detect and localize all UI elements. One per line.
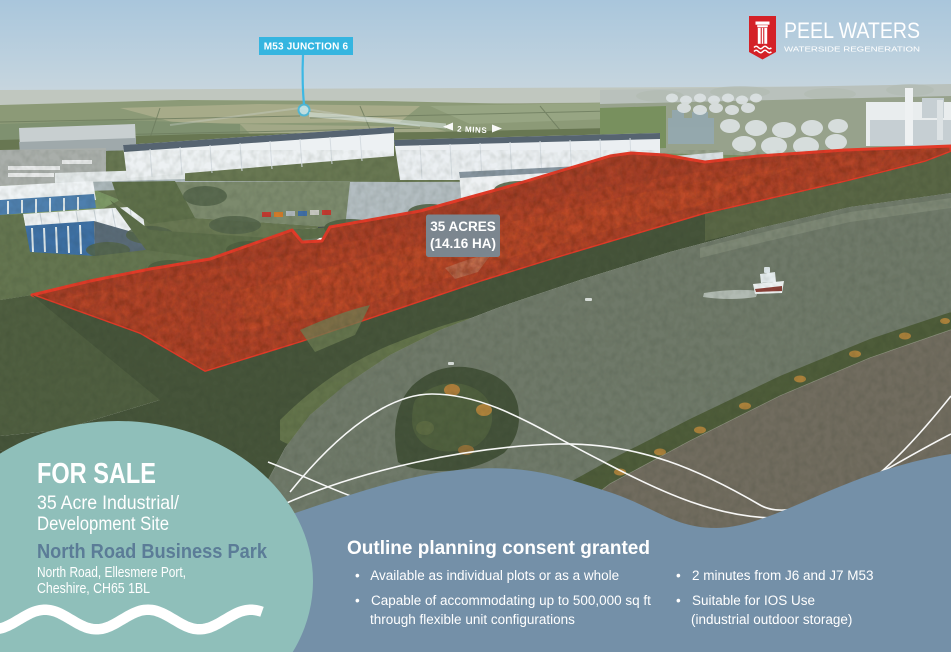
- svg-text:FOR SALE: FOR SALE: [37, 458, 156, 490]
- svg-text:(14.16 HA): (14.16 HA): [430, 236, 496, 251]
- svg-text:35 ACRES: 35 ACRES: [430, 219, 496, 234]
- svg-text:2 MINS: 2 MINS: [457, 125, 488, 136]
- svg-text:Development Site: Development Site: [37, 513, 169, 535]
- svg-text:M53 JUNCTION 6: M53 JUNCTION 6: [264, 42, 349, 53]
- svg-text:North Road, Ellesmere Port,: North Road, Ellesmere Port,: [37, 565, 186, 581]
- svg-text:35 Acre Industrial/: 35 Acre Industrial/: [37, 492, 180, 514]
- svg-text:North Road Business Park: North Road Business Park: [37, 541, 268, 563]
- svg-text:Cheshire, CH65 1BL: Cheshire, CH65 1BL: [37, 581, 150, 597]
- svg-text:PEEL WATERS: PEEL WATERS: [784, 18, 920, 43]
- svg-text:WATERSIDE REGENERATION: WATERSIDE REGENERATION: [784, 45, 920, 54]
